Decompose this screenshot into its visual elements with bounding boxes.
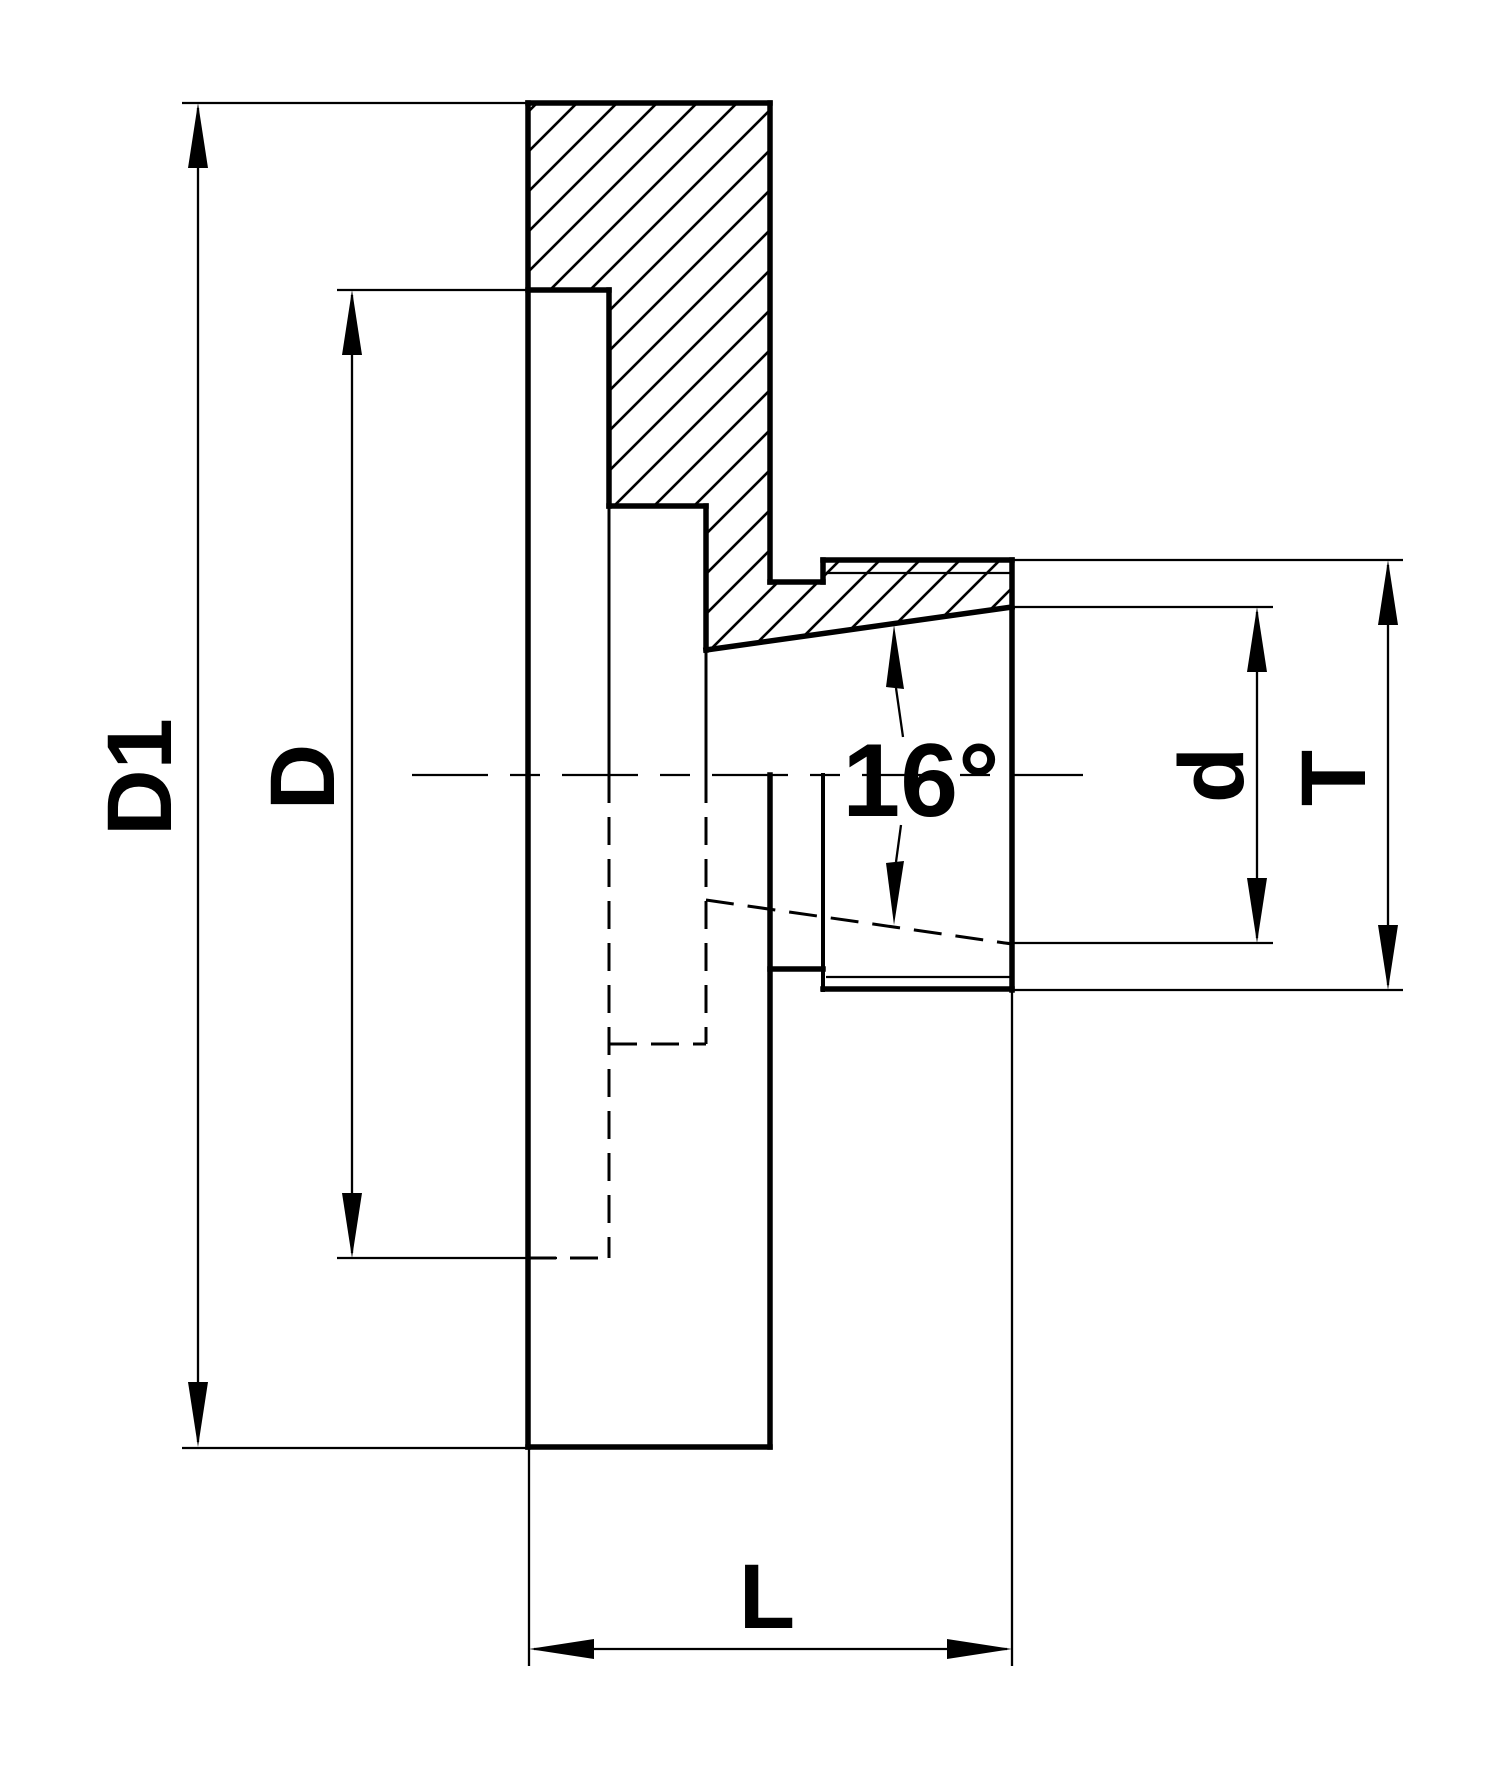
flange-section-drawing: D1 D d T L bbox=[0, 0, 1500, 1769]
label-D: D bbox=[252, 744, 354, 810]
label-T: T bbox=[1283, 750, 1385, 806]
technical-drawing-page: D1 D d T L bbox=[0, 0, 1500, 1769]
label-d: d bbox=[1161, 747, 1263, 803]
label-D1: D1 bbox=[89, 718, 191, 836]
label-L: L bbox=[739, 1546, 795, 1648]
label-taper-angle: 16° bbox=[842, 723, 999, 839]
